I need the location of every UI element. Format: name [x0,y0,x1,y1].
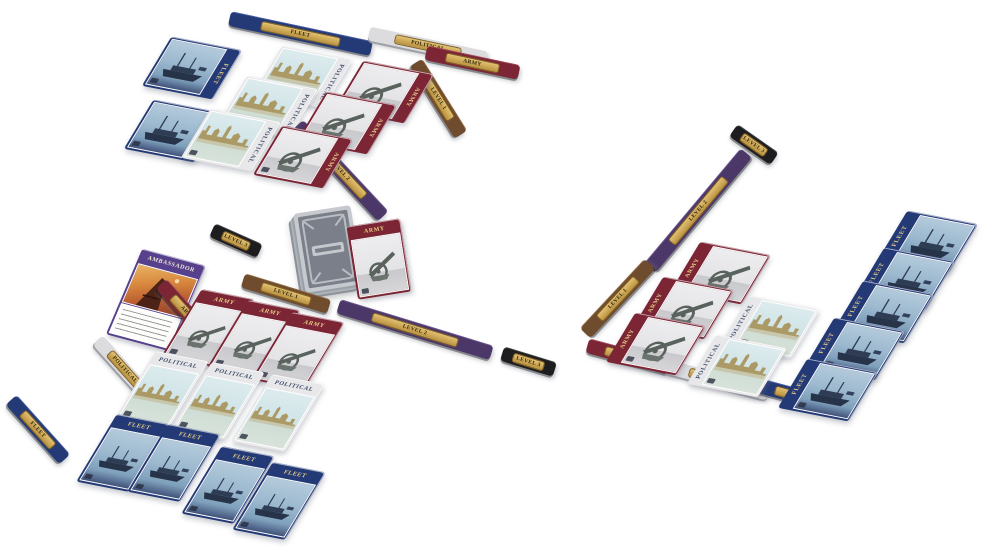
level-2-plate: LEVEL 2 [370,312,459,348]
level-2-stick[interactable]: LEVEL 2 [336,299,493,360]
level-3-plate: LEVEL 3 [220,230,252,252]
cannon-art [351,232,409,297]
army-card[interactable]: ARMY [347,218,412,300]
level-3-plate: LEVEL 3 [511,352,545,371]
game-table: { "labels": { "army": "ARMY", "fleet": "… [0,0,1000,548]
fleet-stick-plate: FLEET [259,21,341,48]
fleet-card[interactable]: FLEET [142,37,242,100]
fleet-stick-plate: FLEET [19,409,57,450]
level-3-stick[interactable]: LEVEL 3 [500,346,557,376]
level-2-plate: LEVEL 2 [667,175,729,246]
fleet-stick[interactable]: FLEET [6,395,71,464]
army-stick-plate: ARMY [445,52,500,73]
level-3-stick[interactable]: LEVEL 3 [209,223,263,258]
